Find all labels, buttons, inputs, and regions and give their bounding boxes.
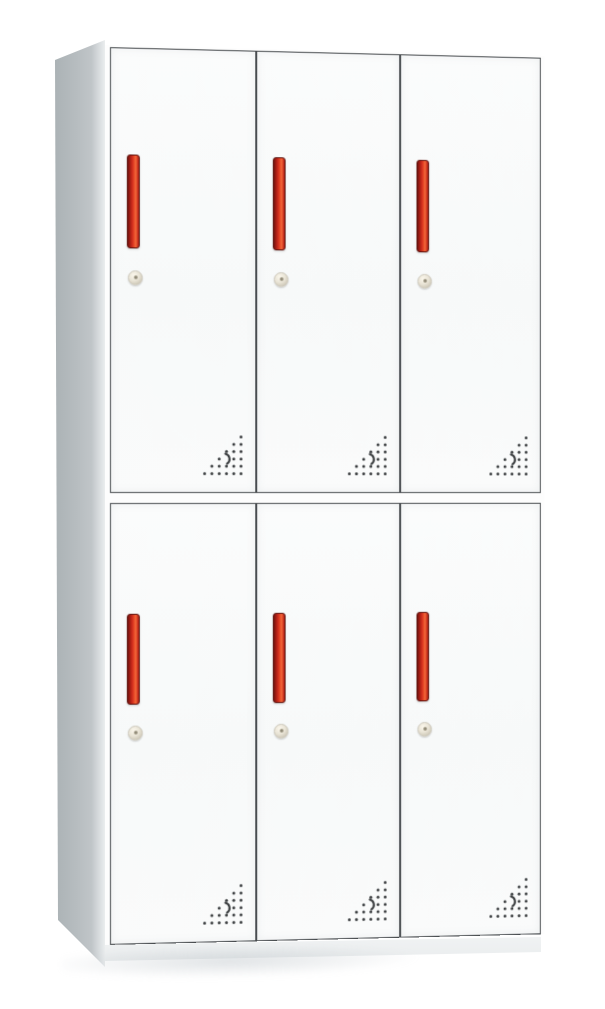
front-face xyxy=(105,45,545,945)
cam-lock xyxy=(274,724,289,739)
vent-holes xyxy=(344,432,390,479)
keyhole-icon xyxy=(423,278,427,282)
locker-cabinet xyxy=(0,0,605,1009)
vent-holes xyxy=(344,877,390,925)
door-handle xyxy=(417,612,430,702)
floor-shadow xyxy=(62,939,543,1001)
keyhole-icon xyxy=(279,728,283,732)
keyhole-icon xyxy=(133,730,137,734)
vent-holes xyxy=(199,431,246,479)
door-4 xyxy=(110,503,256,945)
door-5 xyxy=(256,503,400,941)
vent-holes xyxy=(486,874,532,922)
door-handle xyxy=(127,154,140,248)
door-1 xyxy=(110,47,256,493)
door-2 xyxy=(256,51,400,493)
door-3 xyxy=(400,54,541,493)
keyhole-icon xyxy=(133,275,137,279)
door-handle xyxy=(127,614,140,705)
cam-lock xyxy=(128,726,143,741)
door-handle xyxy=(417,160,430,253)
cam-lock xyxy=(128,270,143,285)
door-handle xyxy=(273,157,286,250)
product-photo-scene xyxy=(0,0,605,1009)
door-6 xyxy=(400,503,541,938)
cam-lock xyxy=(417,274,431,289)
cam-lock xyxy=(417,722,431,737)
vent-holes xyxy=(486,432,532,479)
cabinet-side-panel xyxy=(54,38,106,970)
cam-lock xyxy=(274,272,289,287)
vent-holes xyxy=(199,880,246,929)
door-handle xyxy=(273,613,286,703)
keyhole-icon xyxy=(279,277,283,281)
keyhole-icon xyxy=(423,726,427,730)
